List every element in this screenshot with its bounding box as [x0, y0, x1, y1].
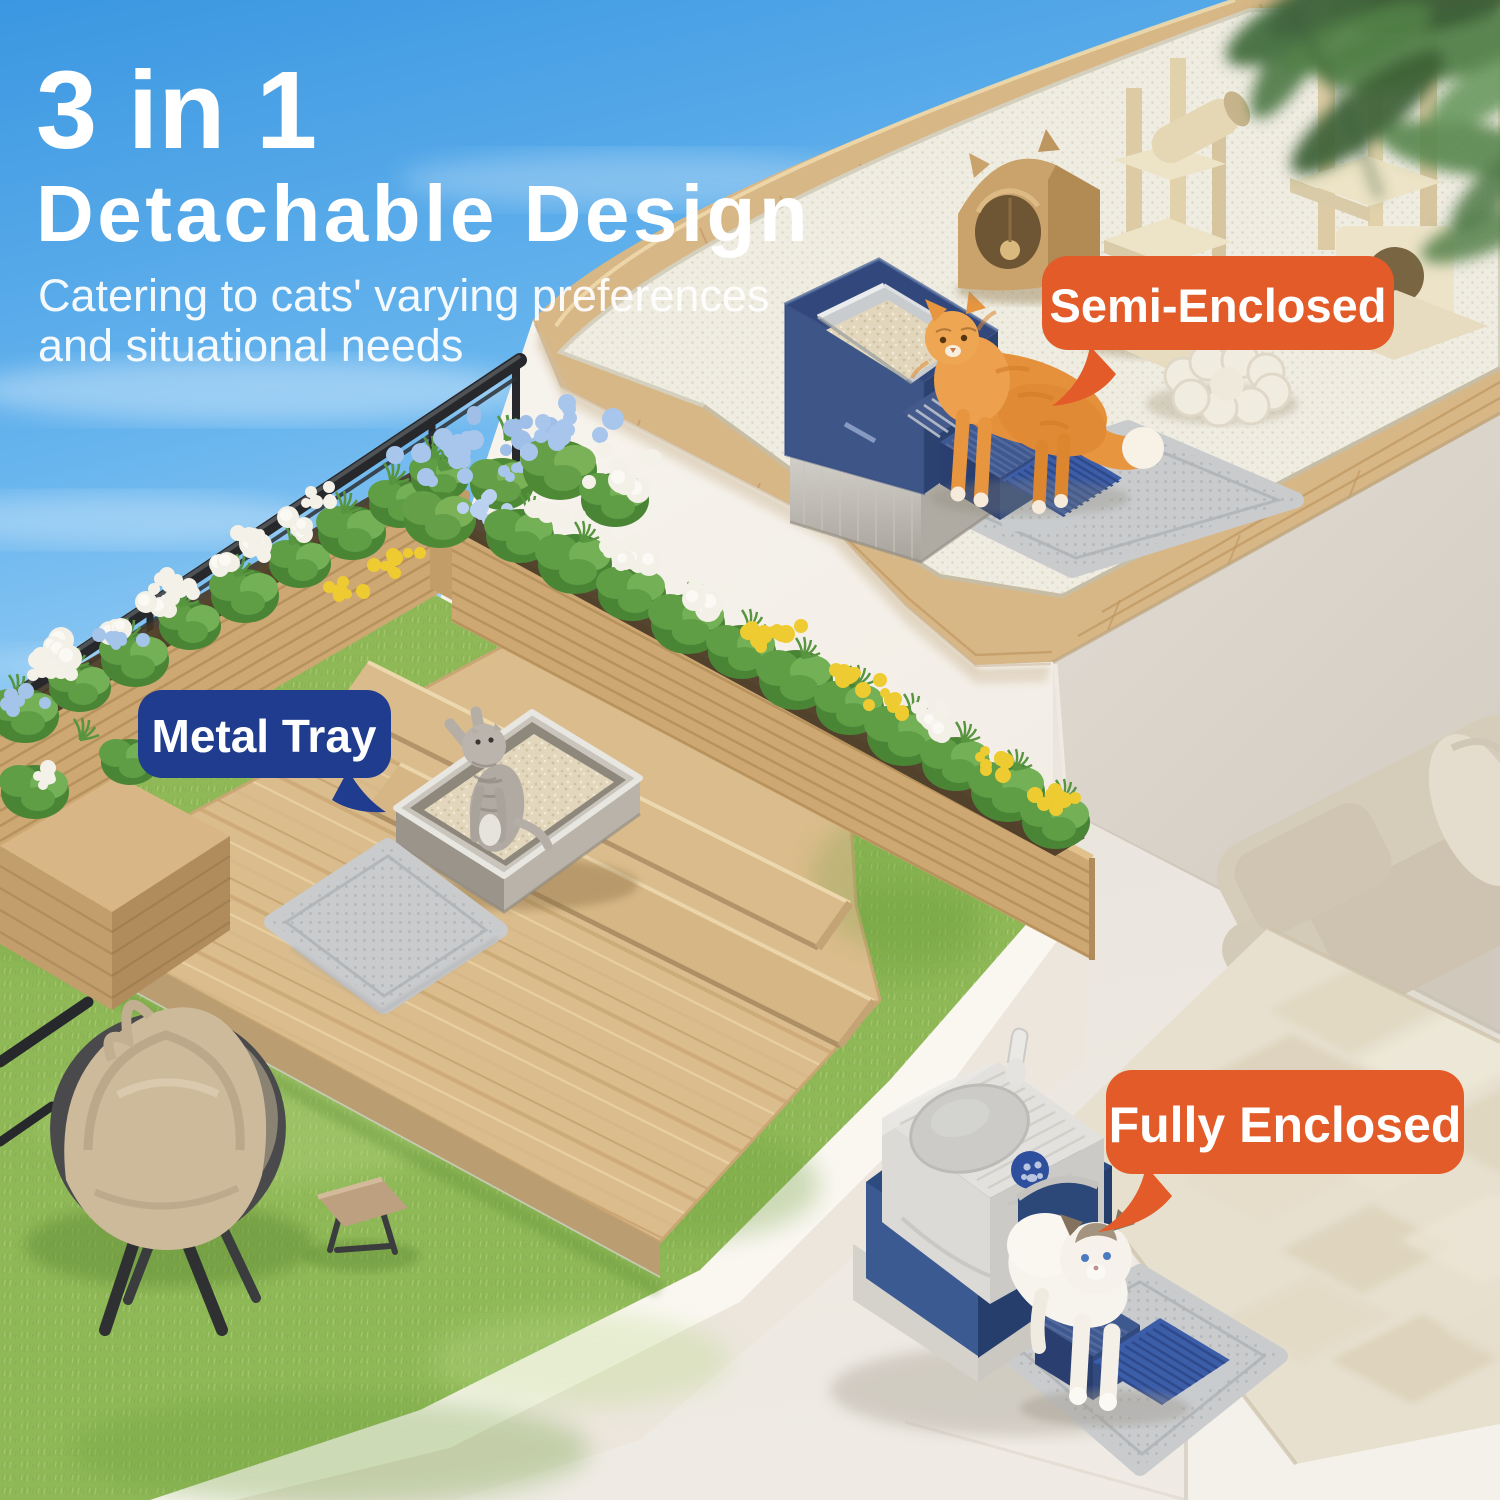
svg-text:Metal Tray: Metal Tray [152, 710, 377, 762]
svg-text:Detachable Design: Detachable Design [36, 169, 811, 258]
svg-text:Catering to cats' varying pref: Catering to cats' varying preferences [38, 270, 769, 321]
svg-text:Fully Enclosed: Fully Enclosed [1109, 1097, 1462, 1153]
svg-text:and situational needs: and situational needs [38, 320, 463, 371]
svg-text:Semi-Enclosed: Semi-Enclosed [1050, 279, 1387, 332]
svg-text:3 in 1: 3 in 1 [36, 49, 317, 172]
